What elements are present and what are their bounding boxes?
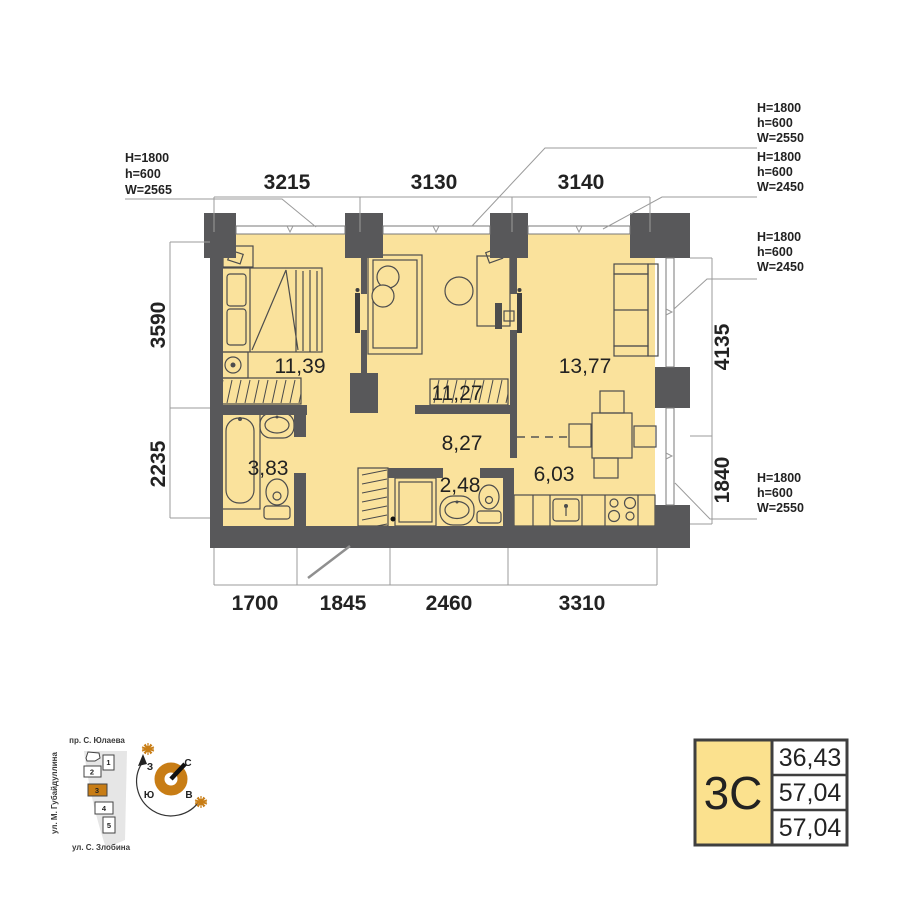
anno-line: h=600 [757, 245, 793, 259]
compass: З С Ю В [137, 743, 207, 816]
room-area-hallway: 8,27 [442, 432, 483, 455]
street-top: пр. С. Юлаева [69, 736, 125, 745]
room-area-bathroom: 3,83 [248, 457, 289, 480]
anno-line: W=2550 [757, 501, 804, 515]
site-plan: 1 2 3 4 5 пр. С. Юлаева ул. М. Губайдулл… [50, 736, 131, 852]
anno-line: H=1800 [125, 151, 169, 165]
anno-line: W=2565 [125, 183, 172, 197]
anno-line: W=2450 [757, 180, 804, 194]
building-number: 5 [107, 821, 111, 830]
anno-line: h=600 [125, 167, 161, 181]
dim-right-2: 1840 [711, 457, 734, 504]
room-area-bedroom-1: 11,39 [275, 355, 326, 378]
area-value-2: 57,04 [779, 779, 842, 807]
compass-south: Ю [144, 790, 154, 801]
window-annotation-right-middle: H=1800 h=600 W=2450 [674, 230, 804, 309]
apartment-summary-table: 3С 36,43 57,04 57,04 [695, 740, 847, 845]
dim-left-1: 3590 [147, 302, 170, 349]
apartment-type: 3С [704, 767, 763, 819]
room-area-wc: 2,48 [440, 474, 481, 497]
anno-line: H=1800 [757, 471, 801, 485]
dim-left-2: 2235 [147, 440, 170, 487]
hall-closet [358, 468, 388, 526]
anno-line: H=1800 [757, 150, 801, 164]
dim-bottom-4: 3310 [559, 592, 606, 615]
floor-plan-canvas: 3215 3130 3140 1700 1845 2460 3310 3590 … [0, 0, 900, 900]
building-number: 1 [106, 758, 110, 767]
dim-top-3: 3140 [558, 171, 605, 194]
anno-line: W=2550 [757, 131, 804, 145]
wardrobe [221, 378, 301, 404]
dim-bottom-2: 1845 [320, 592, 367, 615]
floorplan-page: 3215 3130 3140 1700 1845 2460 3310 3590 … [0, 0, 900, 900]
area-value-3: 57,04 [779, 814, 842, 842]
anno-line: h=600 [757, 486, 793, 500]
door-leaf [355, 293, 360, 333]
compass-east: В [185, 790, 192, 801]
window-annotation-right-bottom: H=1800 h=600 W=2550 [675, 471, 804, 519]
room-area-living: 13,77 [559, 355, 612, 378]
anno-line: W=2450 [757, 260, 804, 274]
dim-bottom-3: 2460 [426, 592, 473, 615]
building-number: 2 [90, 768, 94, 777]
room-area-kitchen: 6,03 [534, 463, 575, 486]
room-area-bedroom-2: 11,27 [432, 382, 483, 405]
anno-line: H=1800 [757, 230, 801, 244]
street-bottom: ул. С. Злобина [72, 843, 131, 852]
sun-icon [142, 743, 154, 755]
area-value-1: 36,43 [779, 744, 842, 772]
anno-line: h=600 [757, 116, 793, 130]
compass-west: З [147, 762, 153, 773]
compass-arrow [138, 754, 147, 766]
compass-north: С [184, 758, 191, 769]
sun-icon [195, 796, 207, 808]
street-left: ул. М. Губайдуллина [50, 752, 59, 834]
dim-right-1: 4135 [711, 323, 734, 370]
dim-top-2: 3130 [411, 171, 458, 194]
anno-line: H=1800 [757, 101, 801, 115]
dim-bottom-1: 1700 [232, 592, 279, 615]
door-leaf [517, 293, 522, 333]
window-annotation-top-right-upper: H=1800 h=600 W=2550 [472, 101, 804, 226]
building-number: 3 [95, 786, 99, 795]
anno-line: h=600 [757, 165, 793, 179]
dim-top-1: 3215 [264, 171, 311, 194]
entrance-door [308, 546, 350, 578]
